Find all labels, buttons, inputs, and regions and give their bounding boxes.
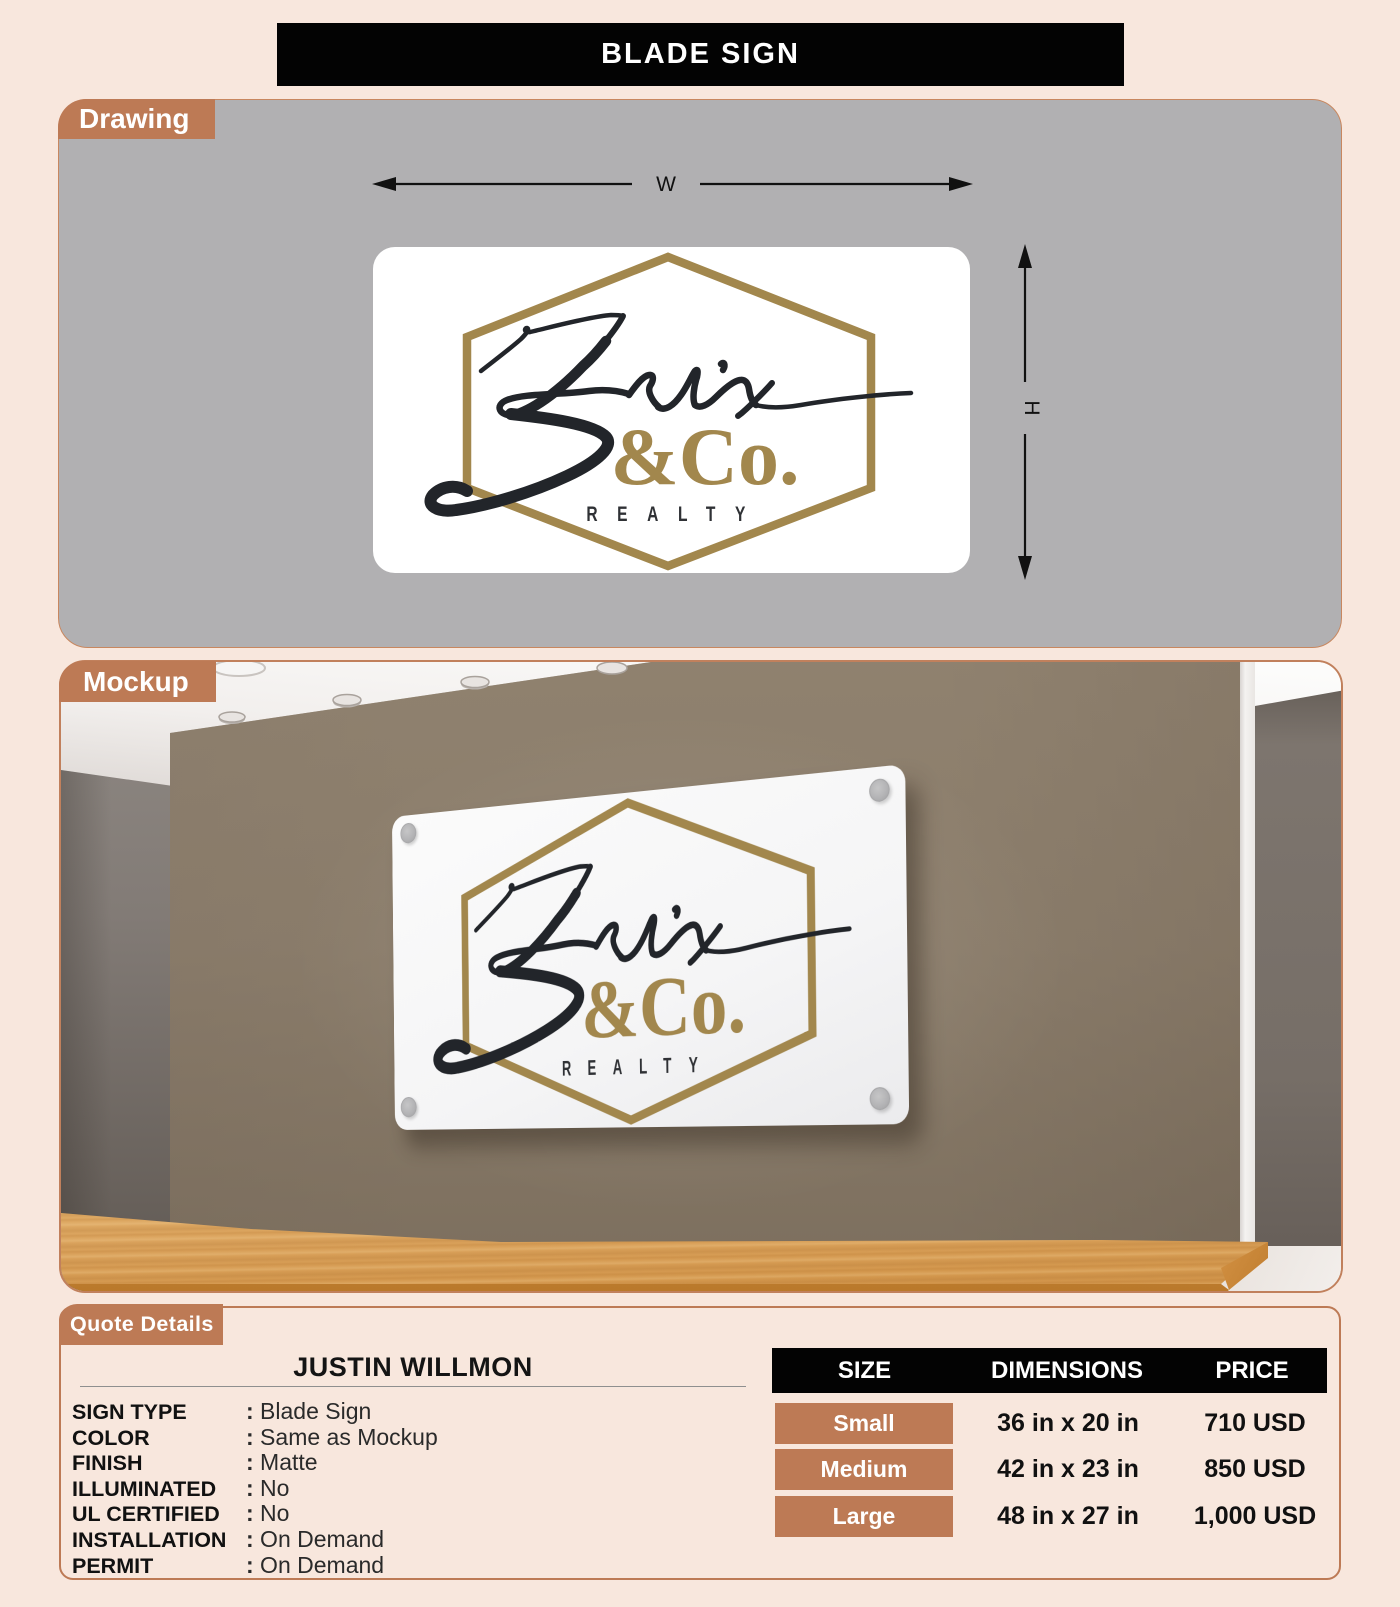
svg-text:H: H <box>1020 400 1042 415</box>
svg-text:W: W <box>656 173 676 196</box>
